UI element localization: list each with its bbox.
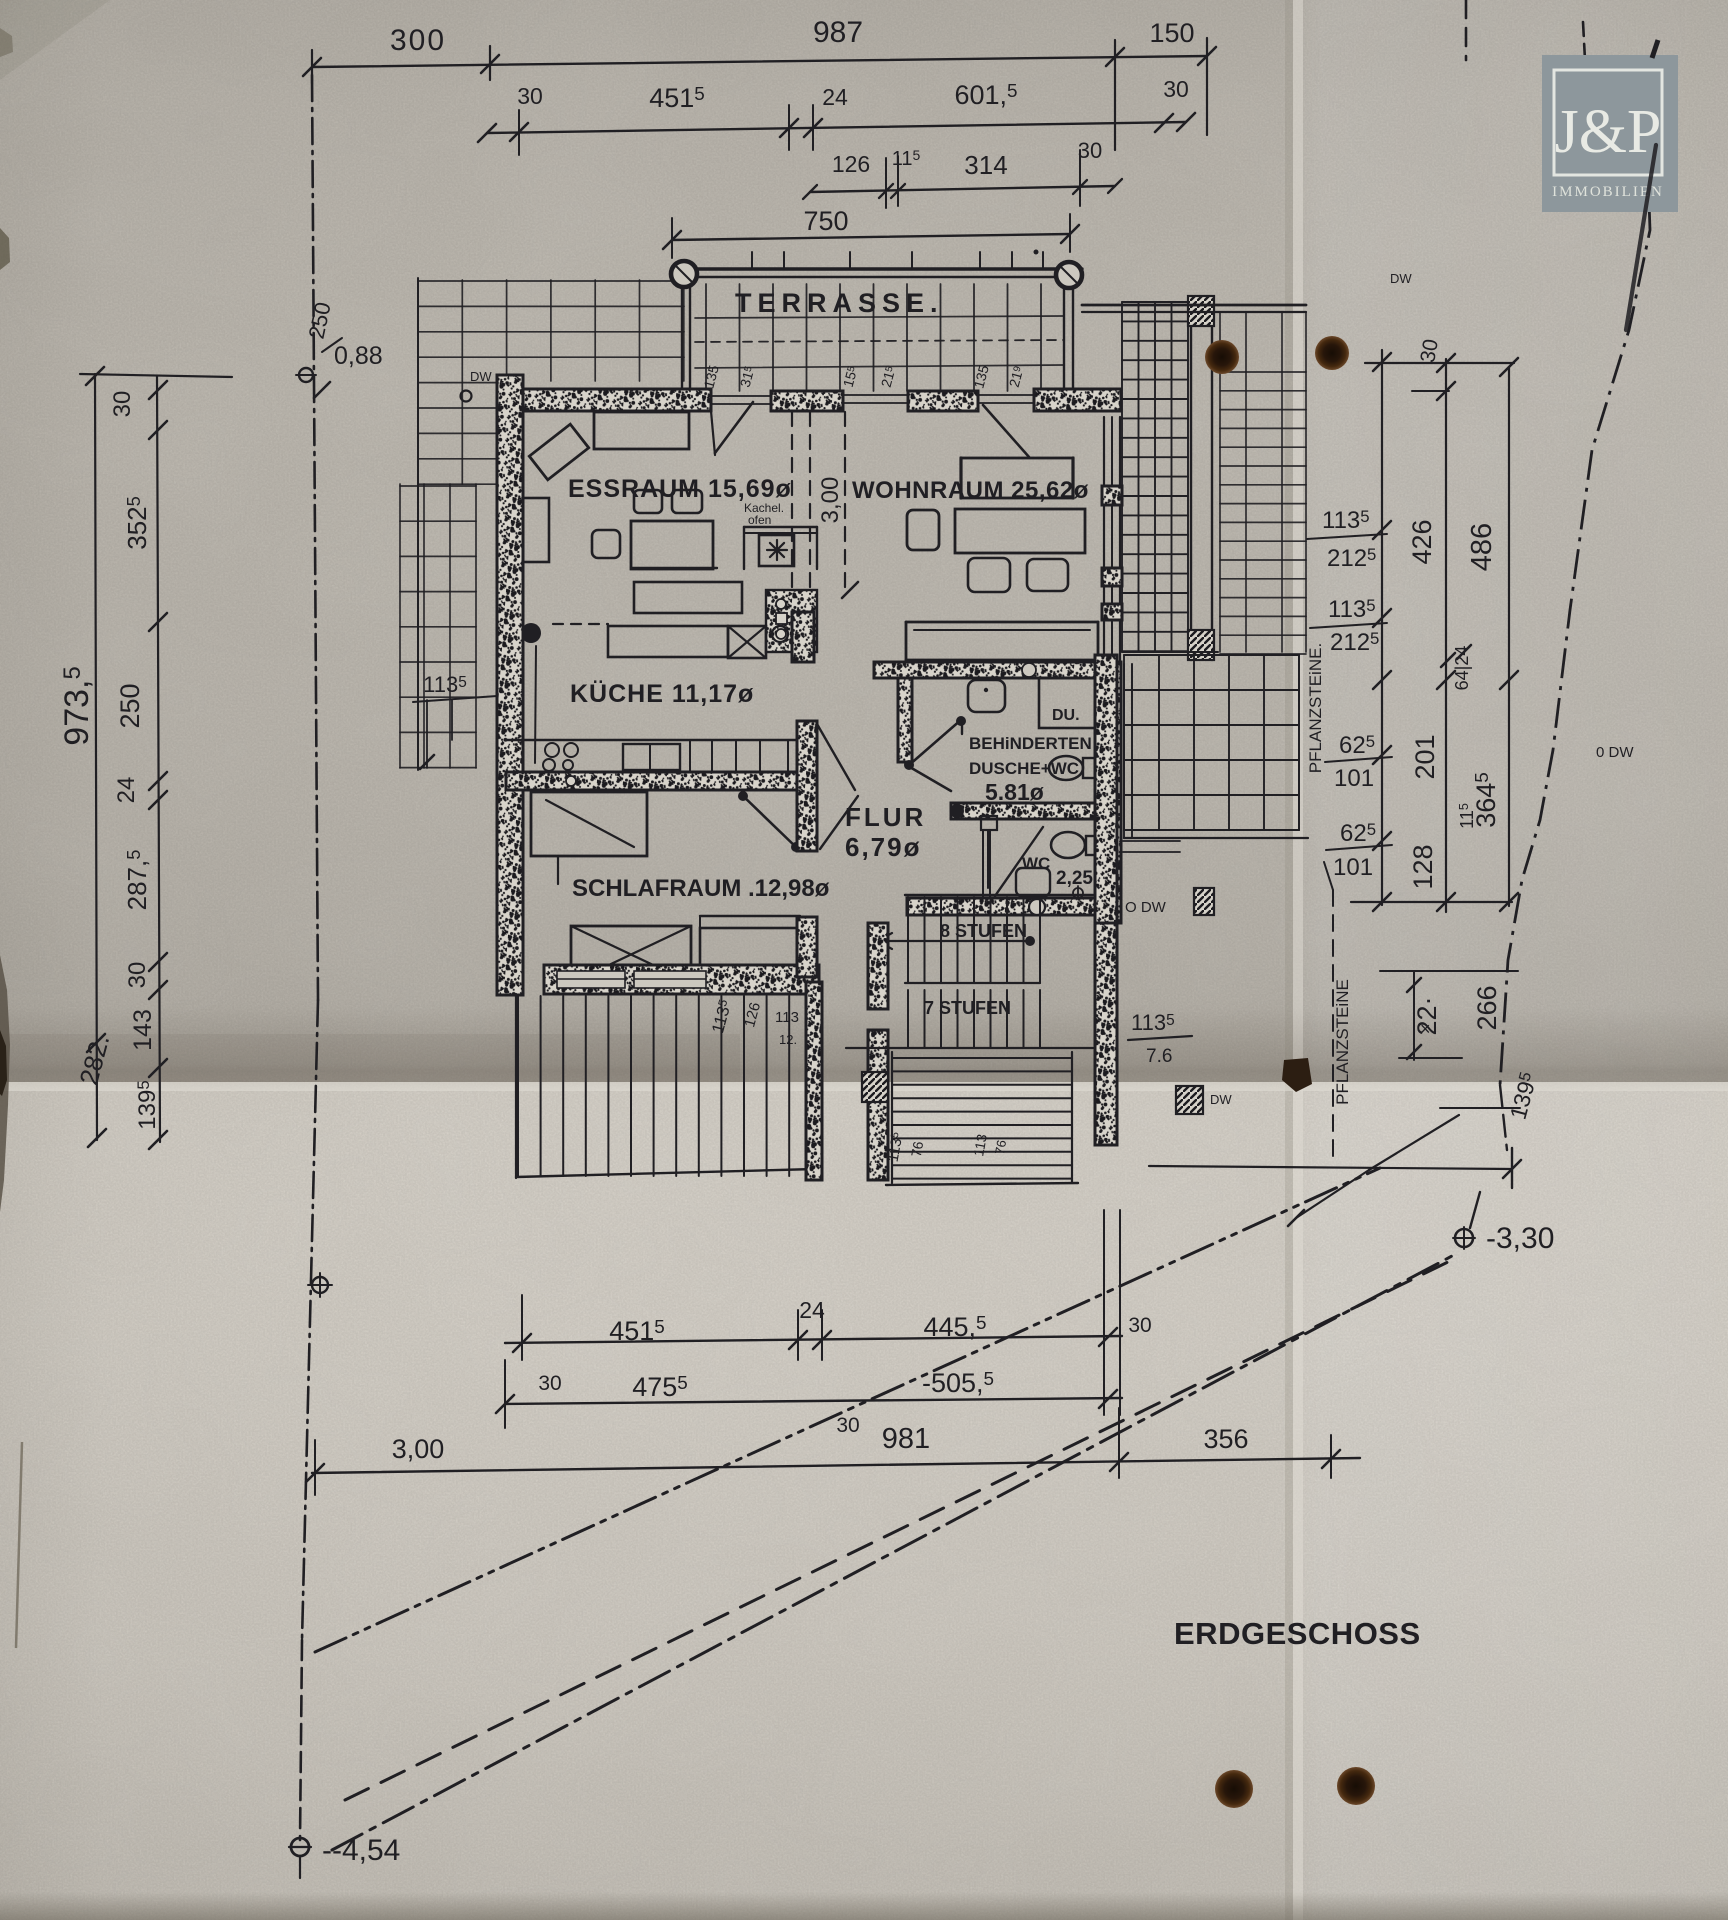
svg-text:8 STUFEN: 8 STUFEN [940, 921, 1027, 941]
svg-text:5.81ø: 5.81ø [985, 779, 1044, 805]
svg-text:PFLANZSTEiNE.: PFLANZSTEiNE. [1306, 643, 1325, 773]
svg-text:0,88: 0,88 [334, 342, 383, 370]
svg-text:O DW: O DW [1125, 899, 1167, 916]
svg-text:314: 314 [964, 150, 1007, 180]
svg-text:750: 750 [803, 206, 848, 236]
svg-text:24: 24 [113, 777, 140, 804]
svg-text:426: 426 [1407, 519, 1437, 564]
svg-text:24: 24 [799, 1297, 825, 1323]
svg-text:WOHNRAUM 25,62ø: WOHNRAUM 25,62ø [852, 477, 1089, 504]
svg-text:DW: DW [1390, 271, 1412, 286]
svg-text:DW: DW [470, 369, 492, 384]
svg-text:143: 143 [129, 1009, 157, 1051]
svg-text:30: 30 [836, 1414, 859, 1437]
svg-text:ofen: ofen [748, 513, 771, 527]
svg-text:30: 30 [538, 1372, 561, 1395]
svg-text:250: 250 [115, 683, 145, 728]
svg-text:30: 30 [109, 391, 136, 418]
svg-text:30: 30 [1128, 1314, 1151, 1337]
svg-text:126: 126 [832, 151, 870, 177]
svg-text:30: 30 [517, 83, 543, 109]
svg-text:3,00: 3,00 [817, 477, 844, 524]
svg-text:300: 300 [390, 24, 446, 57]
svg-text:DUSCHE+WC: DUSCHE+WC [969, 759, 1079, 778]
svg-text:FLUR: FLUR [845, 802, 926, 832]
svg-text:76: 76 [908, 1140, 926, 1158]
svg-text:113: 113 [775, 1009, 799, 1026]
svg-text:KÜCHE 11,17ø: KÜCHE 11,17ø [570, 679, 754, 708]
svg-text:DW: DW [1210, 1092, 1232, 1107]
svg-text:486: 486 [1466, 523, 1498, 571]
svg-text:WC: WC [1022, 854, 1050, 873]
svg-text:PFLANZSTEiNE: PFLANZSTEiNE [1333, 979, 1352, 1105]
svg-text:101: 101 [1334, 765, 1374, 792]
svg-text:7 STUFEN: 7 STUFEN [924, 998, 1011, 1018]
svg-text:987: 987 [813, 16, 863, 49]
svg-text:J&P: J&P [1555, 98, 1662, 166]
svg-text:30: 30 [124, 962, 151, 989]
svg-text:150: 150 [1149, 18, 1194, 48]
svg-text:201: 201 [1410, 734, 1440, 779]
svg-text:76: 76 [992, 1139, 1009, 1156]
svg-text:DU.: DU. [1052, 707, 1080, 724]
svg-text:12.: 12. [779, 1032, 797, 1047]
svg-text:101: 101 [1333, 854, 1373, 881]
svg-text:356: 356 [1203, 1424, 1248, 1454]
svg-text:981: 981 [882, 1423, 930, 1455]
svg-text:0 DW: 0 DW [1596, 744, 1634, 761]
svg-text:30: 30 [1416, 337, 1443, 364]
svg-text:266: 266 [1472, 985, 1502, 1030]
svg-text:ERDGESCHOSS: ERDGESCHOSS [1174, 1616, 1421, 1651]
svg-text:128: 128 [1408, 844, 1438, 889]
svg-text:24: 24 [822, 84, 848, 110]
svg-text:2,25: 2,25 [1056, 868, 1093, 889]
svg-text:30: 30 [1163, 76, 1189, 102]
svg-text:-505,5: -505,5 [922, 1368, 994, 1398]
svg-text:30: 30 [1078, 138, 1102, 163]
svg-text:3,00: 3,00 [392, 1434, 445, 1464]
svg-text:×: × [1420, 1019, 1431, 1039]
svg-text:SCHLAFRAUM .12,98ø: SCHLAFRAUM .12,98ø [572, 875, 830, 902]
svg-text:BEHiNDERTEN: BEHiNDERTEN [969, 734, 1092, 753]
svg-text:7.6: 7.6 [1146, 1046, 1172, 1067]
svg-text:-3,30: -3,30 [1486, 1222, 1554, 1255]
svg-text:6,79ø: 6,79ø [845, 832, 922, 862]
